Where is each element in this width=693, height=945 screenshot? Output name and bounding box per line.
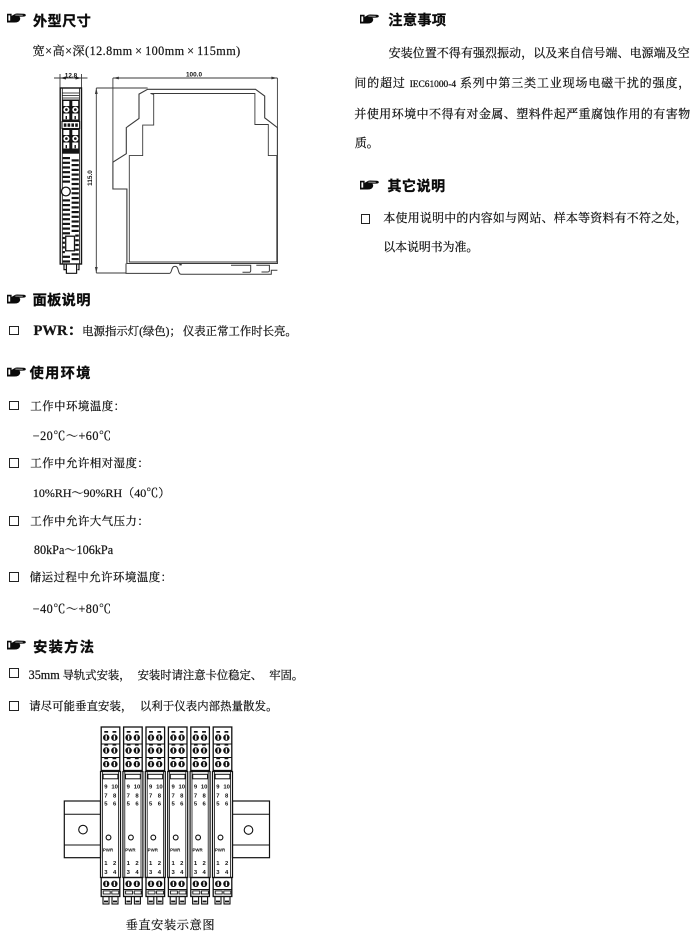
svg-text:PWR: PWR: [125, 848, 136, 853]
svg-text:3: 3: [171, 870, 175, 876]
svg-text:10: 10: [201, 785, 208, 791]
svg-text:7: 7: [127, 794, 131, 800]
svg-text:6: 6: [158, 802, 162, 808]
svg-text:10: 10: [156, 785, 163, 791]
svg-text:10: 10: [223, 785, 230, 791]
svg-text:8: 8: [225, 794, 229, 800]
svg-text:9: 9: [194, 785, 198, 791]
svg-text:PWR: PWR: [148, 848, 159, 853]
svg-text:PWR: PWR: [215, 848, 226, 853]
svg-text:9: 9: [149, 785, 153, 791]
svg-text:7: 7: [149, 794, 153, 800]
svg-text:1: 1: [127, 861, 131, 867]
svg-text:6: 6: [203, 802, 207, 808]
svg-text:8: 8: [113, 794, 117, 800]
svg-text:2: 2: [203, 861, 207, 867]
svg-text:PWR: PWR: [170, 848, 181, 853]
svg-text:9: 9: [127, 785, 131, 791]
svg-text:2: 2: [180, 861, 184, 867]
svg-text:1: 1: [171, 861, 175, 867]
svg-text:7: 7: [171, 794, 175, 800]
svg-text:3: 3: [127, 870, 131, 876]
svg-text:1: 1: [216, 861, 220, 867]
svg-text:8: 8: [203, 794, 207, 800]
svg-text:2: 2: [135, 861, 139, 867]
svg-text:PWR: PWR: [103, 848, 114, 853]
svg-text:PWR: PWR: [192, 848, 203, 853]
svg-text:3: 3: [104, 870, 108, 876]
svg-text:7: 7: [216, 794, 220, 800]
svg-text:8: 8: [135, 794, 139, 800]
svg-text:10: 10: [179, 785, 186, 791]
svg-text:8: 8: [158, 794, 162, 800]
svg-text:9: 9: [216, 785, 220, 791]
svg-text:6: 6: [225, 802, 229, 808]
svg-text:6: 6: [135, 802, 139, 808]
svg-text:7: 7: [194, 794, 198, 800]
svg-text:12.8: 12.8: [65, 72, 78, 79]
svg-text:9: 9: [171, 785, 175, 791]
svg-text:2: 2: [113, 861, 117, 867]
svg-text:2: 2: [225, 861, 229, 867]
svg-text:4: 4: [113, 870, 117, 876]
svg-text:1: 1: [194, 861, 198, 867]
svg-text:3: 3: [149, 870, 153, 876]
svg-text:8: 8: [180, 794, 184, 800]
svg-text:4: 4: [203, 870, 207, 876]
svg-text:6: 6: [113, 802, 117, 808]
svg-text:4: 4: [225, 870, 229, 876]
svg-text:4: 4: [180, 870, 184, 876]
svg-text:115.0: 115.0: [87, 170, 94, 186]
svg-text:7: 7: [104, 794, 108, 800]
svg-text:4: 4: [135, 870, 139, 876]
svg-text:10: 10: [111, 785, 118, 791]
svg-text:1: 1: [104, 861, 108, 867]
svg-text:5: 5: [194, 802, 198, 808]
svg-text:5: 5: [149, 802, 153, 808]
svg-text:5: 5: [216, 802, 220, 808]
svg-text:5: 5: [127, 802, 131, 808]
svg-text:10: 10: [134, 785, 141, 791]
svg-text:5: 5: [104, 802, 108, 808]
svg-text:9: 9: [104, 785, 108, 791]
svg-text:3: 3: [216, 870, 220, 876]
svg-text:3: 3: [194, 870, 198, 876]
svg-text:4: 4: [158, 870, 162, 876]
svg-text:100.0: 100.0: [186, 72, 202, 79]
svg-text:1: 1: [149, 861, 153, 867]
svg-text:6: 6: [180, 802, 184, 808]
svg-text:2: 2: [158, 861, 162, 867]
svg-text:5: 5: [171, 802, 175, 808]
